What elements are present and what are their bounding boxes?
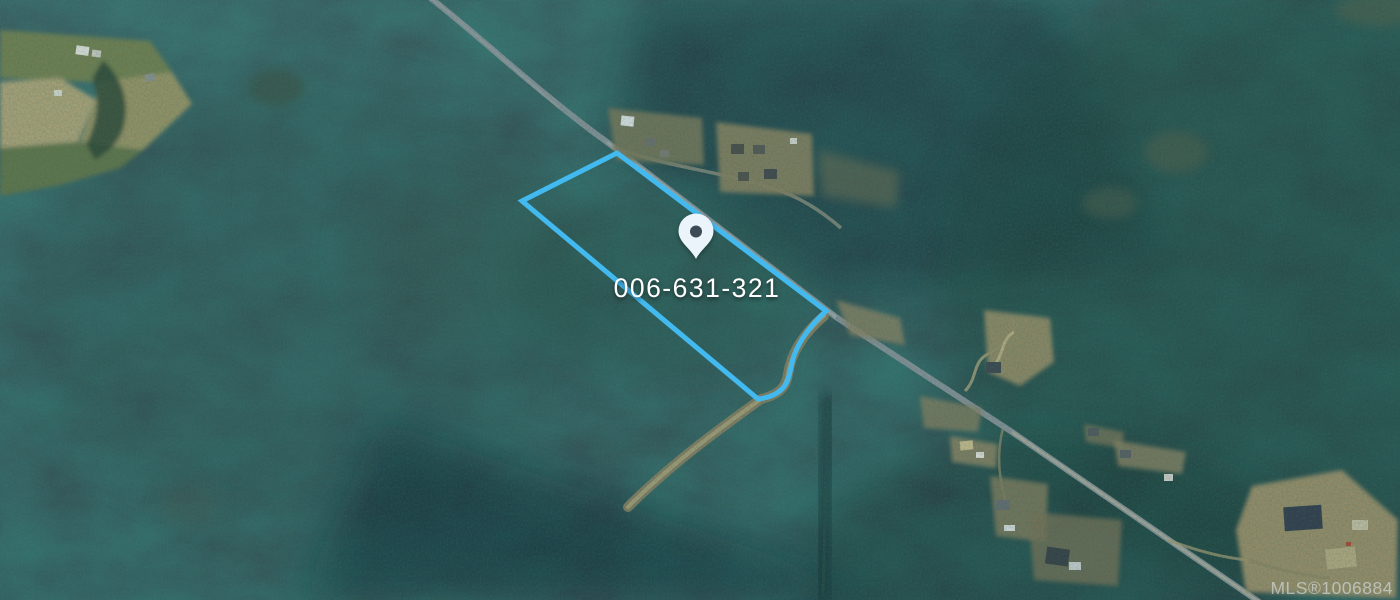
parcel-id-label: 006-631-321	[614, 273, 781, 303]
satellite-imagery: 006-631-321 MLS®1006884	[0, 0, 1400, 600]
pin-hole	[690, 226, 702, 238]
listing-photo-satellite-map[interactable]: 006-631-321 MLS®1006884	[0, 0, 1400, 600]
mls-watermark: MLS®1006884	[1270, 578, 1393, 598]
